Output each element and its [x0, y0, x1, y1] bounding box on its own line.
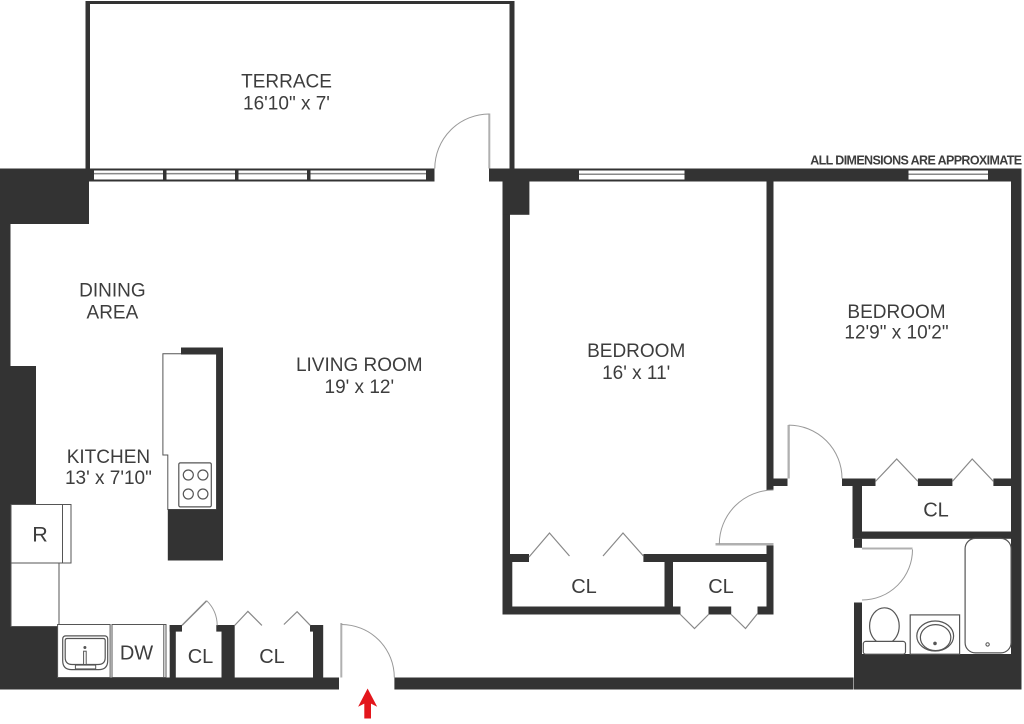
svg-text:CL: CL: [188, 646, 214, 668]
svg-text:R: R: [32, 523, 48, 547]
svg-text:AREA: AREA: [87, 303, 139, 324]
svg-text:CL: CL: [708, 576, 734, 598]
svg-text:CL: CL: [571, 576, 597, 598]
svg-text:13' x 7'10": 13' x 7'10": [65, 468, 152, 489]
svg-text:CL: CL: [923, 500, 949, 522]
svg-text:LIVING ROOM: LIVING ROOM: [296, 355, 423, 376]
svg-text:BEDROOM: BEDROOM: [587, 341, 685, 362]
svg-text:ALL DIMENSIONS ARE APPROXIMATE: ALL DIMENSIONS ARE APPROXIMATE: [810, 154, 1022, 168]
svg-text:16'10" x 7': 16'10" x 7': [243, 94, 330, 115]
svg-text:TERRACE: TERRACE: [241, 72, 332, 93]
svg-text:KITCHEN: KITCHEN: [67, 447, 150, 468]
svg-text:16' x 11': 16' x 11': [602, 363, 670, 384]
svg-text:BEDROOM: BEDROOM: [847, 302, 945, 323]
svg-text:DW: DW: [120, 643, 153, 665]
svg-text:12'9" x 10'2": 12'9" x 10'2": [844, 323, 948, 344]
svg-text:19' x 12': 19' x 12': [325, 377, 395, 398]
svg-text:CL: CL: [259, 646, 285, 668]
svg-text:DINING: DINING: [79, 281, 146, 302]
